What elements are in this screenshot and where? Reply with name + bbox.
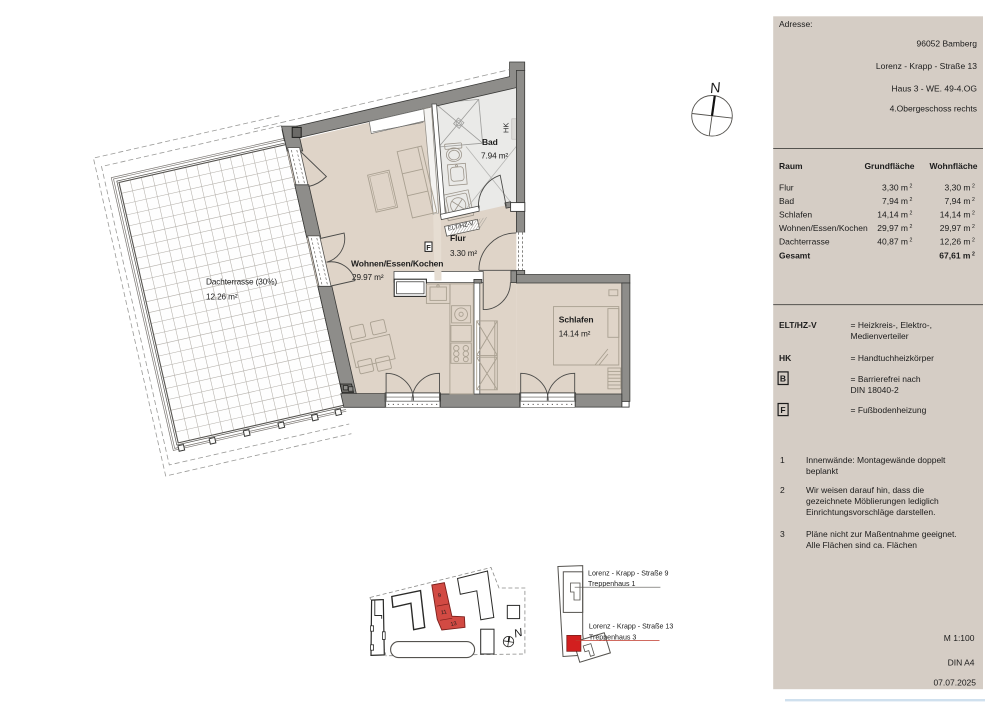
svg-text:Grundfläche: Grundfläche	[864, 161, 914, 171]
svg-text:Bad: Bad	[779, 196, 794, 206]
svg-text:ELT/HZ-V: ELT/HZ-V	[779, 320, 817, 330]
svg-text:Flur: Flur	[779, 183, 794, 193]
svg-text:B: B	[780, 374, 786, 384]
svg-text:M 1:100: M 1:100	[944, 633, 975, 643]
svg-text:2: 2	[972, 238, 975, 244]
svg-text:7,94 m: 7,94 m	[945, 196, 971, 206]
svg-text:Lorenz - Krapp - Straße 9: Lorenz - Krapp - Straße 9	[588, 570, 668, 578]
svg-text:2: 2	[910, 211, 913, 217]
svg-text:2: 2	[780, 485, 785, 495]
svg-text:HK: HK	[779, 353, 792, 363]
svg-text:beplankt: beplankt	[806, 466, 839, 476]
svg-text:2: 2	[910, 184, 913, 190]
svg-text:= Heizkreis-, Elektro-,: = Heizkreis-, Elektro-,	[851, 320, 932, 330]
svg-text:2: 2	[972, 252, 975, 258]
svg-text:14.14 m²: 14.14 m²	[559, 330, 591, 339]
svg-text:Wohnfläche: Wohnfläche	[929, 161, 977, 171]
svg-text:Dachterrasse: Dachterrasse	[779, 237, 830, 247]
svg-text:29.97 m²: 29.97 m²	[352, 273, 384, 282]
svg-text:07.07.2025: 07.07.2025	[933, 678, 976, 688]
svg-text:Adresse:: Adresse:	[779, 19, 813, 29]
svg-text:14,14 m: 14,14 m	[940, 210, 971, 220]
svg-text:Innenwände: Montagewände doppe: Innenwände: Montagewände doppelt	[806, 455, 946, 465]
svg-text:2: 2	[910, 224, 913, 230]
svg-text:3,30 m: 3,30 m	[882, 183, 908, 193]
svg-text:DIN 18040-2: DIN 18040-2	[851, 385, 899, 395]
svg-text:2: 2	[972, 184, 975, 190]
svg-text:7.94 m²: 7.94 m²	[481, 152, 508, 161]
svg-text:4.Obergeschoss rechts: 4.Obergeschoss rechts	[890, 104, 977, 114]
svg-text:Schlafen: Schlafen	[779, 210, 812, 220]
svg-text:7,94 m: 7,94 m	[882, 196, 908, 206]
svg-text:2: 2	[910, 197, 913, 203]
svg-text:Lorenz - Krapp - Straße 13: Lorenz - Krapp - Straße 13	[589, 623, 673, 631]
svg-text:Einrichtungsvorschläge darstel: Einrichtungsvorschläge darstellen.	[806, 507, 935, 517]
svg-text:HK: HK	[502, 123, 511, 133]
svg-text:Lorenz - Krapp - Straße 13: Lorenz - Krapp - Straße 13	[876, 61, 977, 71]
svg-text:F: F	[780, 405, 785, 415]
svg-text:= Barrierefrei nach: = Barrierefrei nach	[851, 374, 921, 384]
svg-text:11: 11	[440, 609, 447, 616]
svg-text:29,97 m: 29,97 m	[940, 223, 971, 233]
svg-text:Gesamt: Gesamt	[779, 251, 810, 261]
svg-text:Haus 3 - WE. 49-4.OG: Haus 3 - WE. 49-4.OG	[892, 84, 978, 94]
svg-text:12,26 m: 12,26 m	[940, 237, 971, 247]
svg-text:2: 2	[972, 197, 975, 203]
svg-text:13: 13	[450, 621, 457, 628]
svg-text:96052 Bamberg: 96052 Bamberg	[917, 39, 978, 49]
svg-text:Raum: Raum	[779, 161, 803, 171]
svg-text:Wir weisen darauf hin, dass di: Wir weisen darauf hin, dass die	[806, 485, 924, 495]
svg-text:3: 3	[780, 529, 785, 539]
svg-text:2: 2	[972, 224, 975, 230]
svg-text:12.26 m²: 12.26 m²	[206, 292, 238, 301]
svg-text:40,87 m: 40,87 m	[877, 237, 908, 247]
svg-text:Wohnen/Essen/Kochen: Wohnen/Essen/Kochen	[779, 223, 868, 233]
svg-text:29,97 m: 29,97 m	[877, 223, 908, 233]
svg-text:3,30 m: 3,30 m	[945, 183, 971, 193]
svg-text:DIN A4: DIN A4	[948, 658, 975, 668]
svg-text:gezeichnete Möblierungen ledig: gezeichnete Möblierungen lediglich	[806, 496, 939, 506]
svg-text:14,14 m: 14,14 m	[877, 210, 908, 220]
svg-text:1: 1	[780, 455, 785, 465]
svg-text:= Fußbodenheizung: = Fußbodenheizung	[851, 405, 927, 415]
svg-text:Bad: Bad	[482, 137, 498, 147]
svg-text:Wohnen/Essen/Kochen: Wohnen/Essen/Kochen	[351, 259, 443, 269]
svg-text:Schlafen: Schlafen	[559, 314, 594, 324]
svg-text:Flur: Flur	[450, 233, 466, 243]
svg-text:2: 2	[910, 238, 913, 244]
svg-text:67,61 m: 67,61 m	[939, 251, 971, 261]
svg-text:F: F	[426, 243, 431, 252]
svg-text:2: 2	[972, 211, 975, 217]
svg-text:Pläne nicht zur Maßentnahme ge: Pläne nicht zur Maßentnahme geeignet.	[806, 529, 957, 539]
svg-text:= Handtuchheizkörper: = Handtuchheizkörper	[851, 353, 935, 363]
svg-text:Alle Flächen sind ca. Flächen: Alle Flächen sind ca. Flächen	[806, 540, 917, 550]
svg-text:Medienverteiler: Medienverteiler	[851, 331, 909, 341]
svg-text:Dachterrasse (30%): Dachterrasse (30%)	[206, 277, 277, 286]
svg-text:3.30 m²: 3.30 m²	[450, 249, 477, 258]
